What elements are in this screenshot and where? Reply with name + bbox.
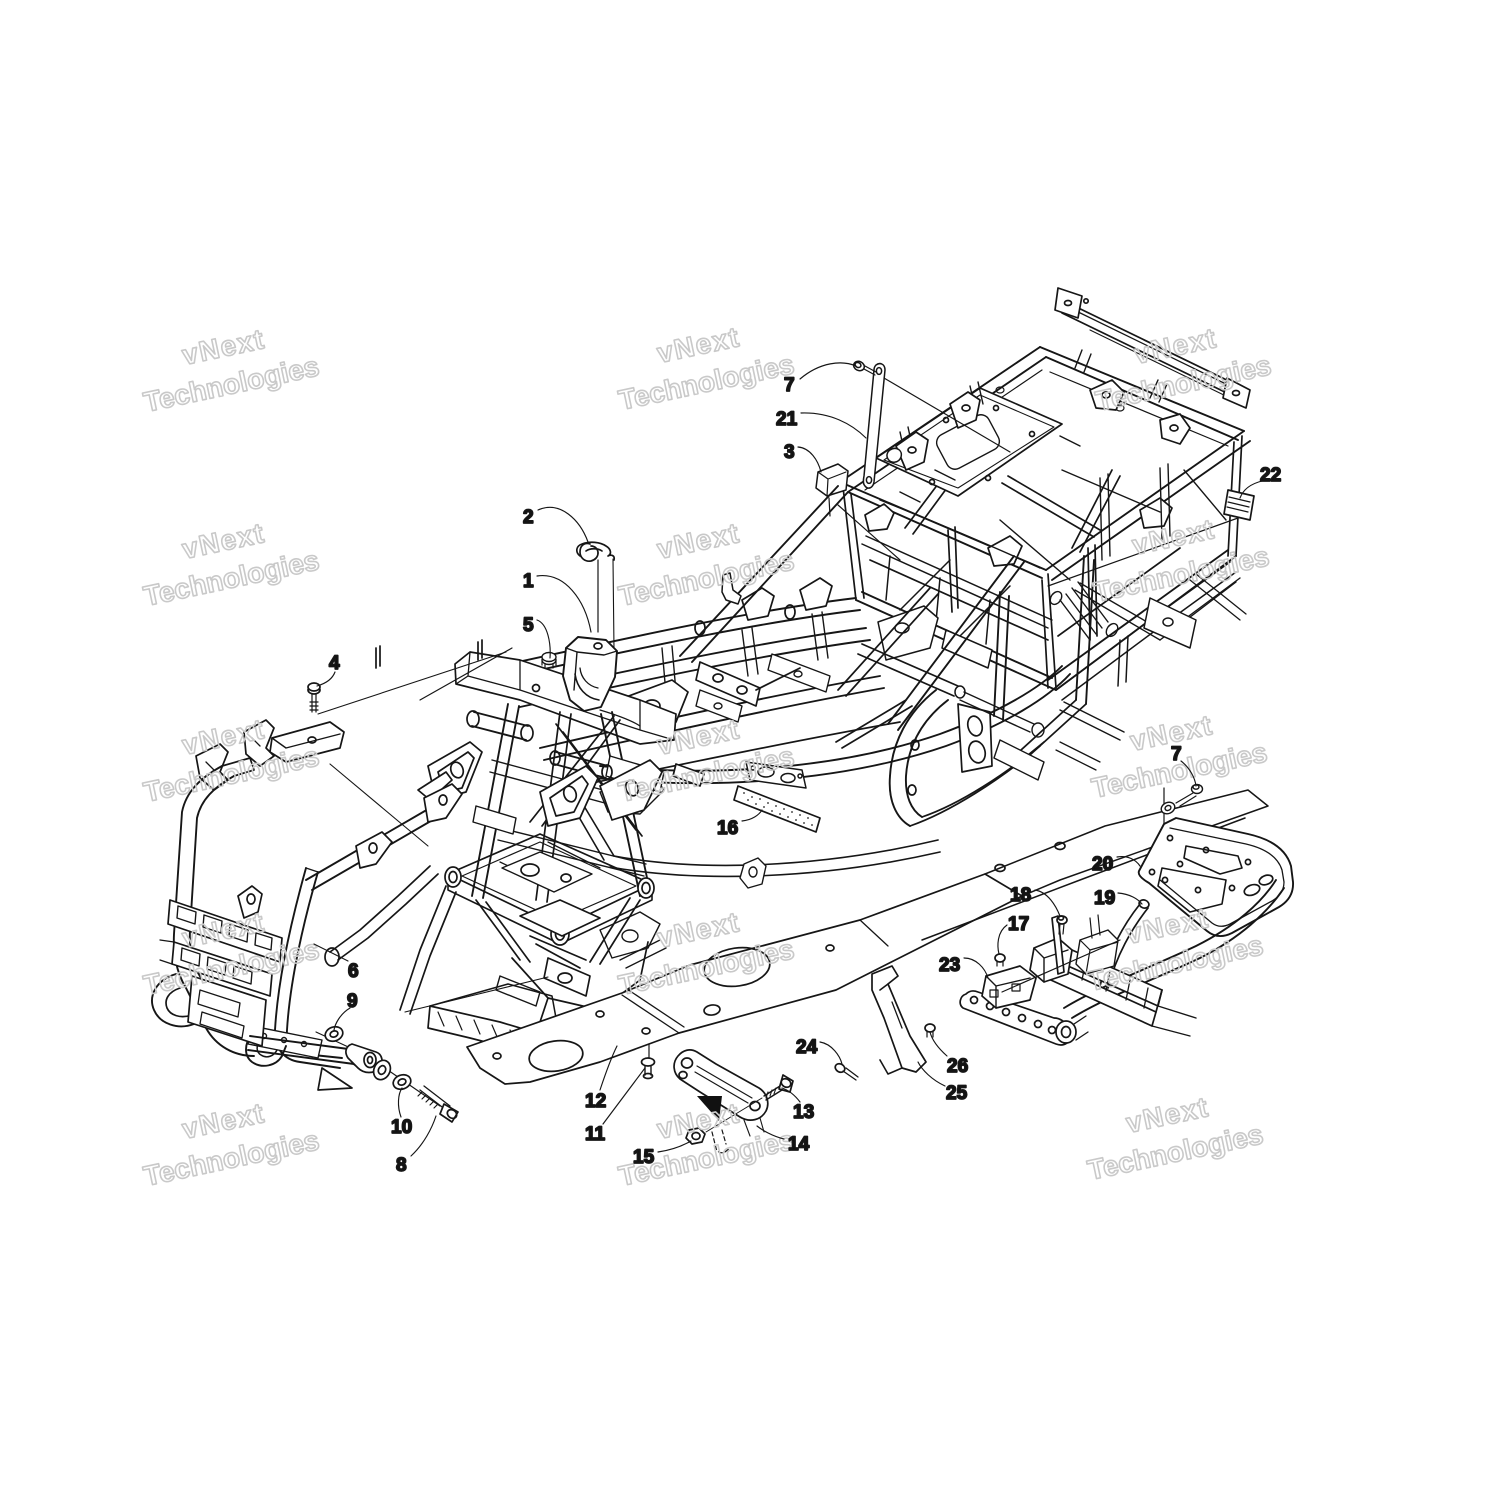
svg-text:22: 22 (1260, 465, 1281, 486)
svg-text:10: 10 (391, 1117, 412, 1138)
svg-text:1: 1 (523, 571, 534, 592)
svg-text:3: 3 (784, 442, 795, 463)
svg-text:7: 7 (1171, 744, 1182, 765)
svg-text:16: 16 (717, 818, 738, 839)
svg-text:8: 8 (396, 1155, 407, 1176)
svg-text:6: 6 (348, 961, 359, 982)
svg-text:14: 14 (788, 1134, 810, 1155)
svg-text:20: 20 (1092, 854, 1113, 875)
svg-text:12: 12 (585, 1091, 606, 1112)
svg-text:5: 5 (523, 615, 534, 636)
svg-text:26: 26 (947, 1056, 968, 1077)
svg-text:11: 11 (585, 1124, 606, 1145)
svg-text:4: 4 (329, 653, 340, 674)
svg-text:24: 24 (796, 1037, 818, 1058)
svg-text:19: 19 (1094, 888, 1115, 909)
svg-text:18: 18 (1010, 885, 1031, 906)
svg-text:9: 9 (347, 991, 358, 1012)
svg-text:17: 17 (1008, 914, 1029, 935)
svg-text:15: 15 (633, 1147, 655, 1168)
svg-text:25: 25 (946, 1083, 968, 1104)
svg-text:7: 7 (784, 375, 795, 396)
svg-text:13: 13 (793, 1102, 814, 1123)
svg-text:21: 21 (776, 409, 798, 430)
svg-text:23: 23 (939, 955, 960, 976)
svg-text:2: 2 (523, 507, 534, 528)
